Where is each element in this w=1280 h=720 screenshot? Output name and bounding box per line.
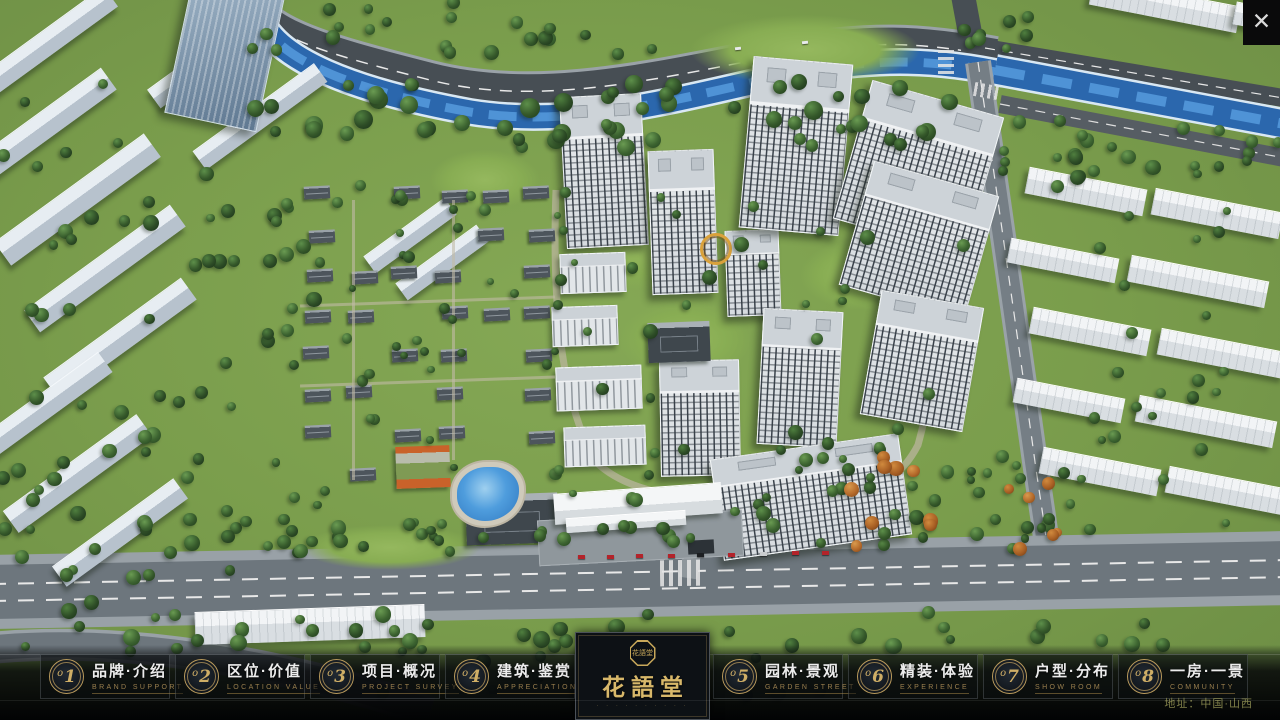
building-townhouse (304, 185, 331, 199)
tree (967, 476, 975, 484)
building-orange (395, 445, 450, 489)
building-lowrise (563, 425, 646, 468)
parked-car (607, 555, 614, 559)
building-townhouse (394, 429, 421, 443)
tree (278, 514, 289, 525)
menu-label-zh: 一房·一景 (1170, 660, 1245, 681)
tree (295, 615, 304, 624)
building-townhouse (305, 389, 332, 403)
tree (417, 122, 433, 138)
menu-label-zh: 户型·分布 (1035, 660, 1110, 681)
tree (878, 527, 891, 540)
tree (32, 161, 43, 172)
moving-car (735, 47, 741, 51)
tree (70, 506, 85, 521)
tree (1022, 11, 1034, 23)
tree (557, 532, 571, 546)
tree (271, 44, 283, 56)
tree (447, 0, 460, 9)
tree (445, 546, 455, 556)
tree (802, 300, 810, 308)
tree (457, 349, 465, 357)
tree (450, 464, 457, 471)
tree (851, 115, 868, 132)
tree (580, 30, 591, 41)
tree (1148, 412, 1156, 420)
menu-item-o6[interactable]: o6精装·体验EXPERIENCE (848, 654, 978, 699)
tree (877, 460, 891, 474)
tree (189, 258, 203, 272)
brand-seal-icon: 花語堂 (630, 640, 656, 666)
tree (816, 538, 826, 548)
tree (119, 215, 130, 226)
playground-ring (700, 233, 732, 265)
tree (865, 516, 879, 530)
tree (734, 237, 749, 252)
walk-path (352, 200, 355, 480)
tree (126, 570, 141, 585)
tree (1119, 280, 1130, 291)
tree (923, 388, 935, 400)
tree (220, 357, 232, 369)
tree (941, 94, 957, 110)
tree (957, 239, 970, 252)
tree (838, 297, 846, 305)
tree (996, 450, 1009, 463)
tree (970, 527, 984, 541)
tree (833, 91, 844, 102)
crosswalk (938, 50, 954, 74)
tree (313, 501, 322, 510)
tree (642, 609, 654, 621)
tree (47, 472, 61, 486)
crosswalk (660, 560, 702, 587)
tree (854, 89, 869, 104)
menu-label-en: APPRECIATION (497, 684, 577, 694)
building-tower (559, 93, 649, 249)
menu-item-o1[interactable]: o1品牌·介绍BRAND SUPPORT (40, 654, 170, 699)
tree (766, 111, 783, 128)
tree (199, 167, 213, 181)
tree (894, 138, 907, 151)
tree (542, 359, 552, 369)
tree (1077, 130, 1088, 141)
tree (822, 437, 835, 450)
tree (924, 519, 936, 531)
tree (650, 448, 659, 457)
tree (646, 393, 655, 402)
tree (816, 227, 824, 235)
tree (612, 48, 623, 59)
tree (844, 482, 859, 497)
parked-car (792, 551, 799, 555)
tree (57, 456, 70, 469)
tree (123, 629, 140, 646)
building-townhouse (309, 230, 336, 244)
tree (544, 23, 556, 35)
tree (1088, 165, 1100, 177)
menu-badge-icon: o4 (454, 659, 489, 694)
menu-badge-icon: o7 (992, 659, 1027, 694)
tree (141, 447, 151, 457)
menu-badge-icon: o6 (857, 659, 892, 694)
parked-car (822, 551, 829, 555)
tree (1077, 475, 1085, 483)
tree (306, 624, 319, 637)
tree (1066, 499, 1076, 509)
tree (766, 518, 780, 532)
menu-badge-icon: o1 (49, 659, 84, 694)
tree (427, 366, 435, 374)
building-townhouse (304, 310, 331, 324)
tree (449, 205, 458, 214)
close-button[interactable]: ✕ (1243, 0, 1280, 45)
menu-item-o3[interactable]: o3项目·概况PROJECT SURVEY (310, 654, 440, 699)
brand-logo-panel[interactable]: 花語堂 花語堂 · · · · · · · · · · (575, 632, 710, 720)
tree (11, 463, 26, 478)
tree (1219, 367, 1228, 376)
tree (434, 535, 445, 546)
tree (1193, 235, 1201, 243)
menu-label-en: LOCATION VALUE (227, 684, 320, 694)
tree (892, 80, 908, 96)
tree (1214, 125, 1225, 136)
tree (1177, 122, 1190, 135)
building-townhouse (529, 430, 556, 444)
building-lowrise (559, 252, 626, 294)
tree (422, 619, 434, 631)
tree (1192, 374, 1205, 387)
tree (520, 98, 540, 118)
building-townhouse (351, 270, 378, 284)
tree (1187, 391, 1200, 404)
tree (437, 519, 447, 529)
tree (998, 166, 1007, 175)
menu-label-zh: 建筑·鉴赏 (497, 660, 572, 681)
building-townhouse (524, 264, 551, 278)
building-townhouse (484, 307, 511, 321)
menu-item-o4[interactable]: o4建筑·鉴赏APPRECIATION (445, 654, 575, 699)
presentation-app: ✕ o1品牌·介绍BRAND SUPPORTo2区位·价值LOCATION VA… (0, 0, 1280, 720)
walk-path (452, 200, 455, 460)
tree (1193, 170, 1202, 179)
menu-item-o5[interactable]: o5园林·景观GARDEN STREET (713, 654, 843, 699)
tree (524, 32, 538, 46)
tree (49, 240, 58, 249)
tree (1112, 367, 1124, 379)
tree (916, 125, 928, 137)
tree (332, 197, 342, 207)
tree (484, 45, 499, 60)
tree (403, 518, 416, 531)
building-townhouse (483, 189, 510, 203)
tree (260, 28, 272, 40)
tree (181, 471, 194, 484)
tree (323, 3, 336, 16)
building-townhouse (528, 228, 555, 242)
tree (851, 628, 867, 644)
tree (1084, 524, 1095, 535)
tree (262, 328, 274, 340)
tree (113, 138, 123, 148)
tree (184, 535, 200, 551)
tree (1069, 150, 1084, 165)
tree (554, 465, 564, 475)
tree (806, 139, 819, 152)
tree (918, 532, 929, 543)
parked-car (668, 554, 675, 558)
building-townhouse (524, 305, 551, 319)
tree (1139, 618, 1150, 629)
menu-badge-icon: o5 (722, 659, 757, 694)
tree (364, 4, 373, 13)
menu-label-zh: 项目·概况 (362, 660, 437, 681)
menu-badge-icon: o3 (319, 659, 354, 694)
tree (98, 79, 108, 89)
tree (446, 12, 457, 23)
tree (795, 466, 803, 474)
tree (102, 444, 116, 458)
tree (560, 187, 571, 198)
tree (206, 214, 215, 223)
tree (569, 490, 576, 497)
building-lowrise (551, 305, 618, 347)
tree (1124, 211, 1134, 221)
tree (811, 333, 823, 345)
tree (487, 278, 494, 285)
menu-label-en: SHOW ROOM (1035, 684, 1102, 694)
building-townhouse (303, 346, 330, 360)
tree (551, 348, 558, 355)
building-townhouse (306, 269, 333, 283)
tree (326, 30, 340, 44)
tree (466, 191, 476, 201)
tree (15, 550, 29, 564)
tree (448, 315, 457, 324)
tree (1195, 443, 1208, 456)
tree (756, 506, 771, 521)
tree (1246, 135, 1258, 147)
tree (367, 86, 385, 104)
tree (60, 568, 74, 582)
tree (263, 254, 277, 268)
tree (1051, 180, 1064, 193)
tree (909, 510, 923, 524)
tree (1053, 153, 1062, 162)
tree (555, 274, 567, 286)
menu-label-zh: 品牌·介绍 (92, 660, 167, 681)
tree (306, 292, 321, 307)
tree (1214, 161, 1224, 171)
menu-label-zh: 区位·价值 (227, 660, 302, 681)
tree (597, 523, 609, 535)
tree (938, 622, 950, 634)
tree (1108, 430, 1121, 443)
tree (1043, 513, 1055, 525)
tree (143, 196, 155, 208)
tree (627, 262, 638, 273)
tree (1058, 467, 1070, 479)
building-townhouse (478, 228, 505, 242)
tree (601, 119, 612, 130)
parked-car (697, 553, 704, 557)
tree (1131, 402, 1142, 413)
tree (365, 24, 375, 34)
tree (444, 46, 456, 58)
bottom-nav-bar: o1品牌·介绍BRAND SUPPORTo2区位·价值LOCATION VALU… (0, 645, 1280, 720)
tree (513, 133, 525, 145)
building-townhouse (524, 388, 551, 402)
tree (26, 493, 40, 507)
tree (405, 78, 417, 90)
tree (730, 507, 739, 516)
menu-label-en: BRAND SUPPORT (92, 684, 183, 694)
brand-name: 花語堂 (602, 668, 689, 702)
tree (29, 390, 44, 405)
menu-item-o8[interactable]: o8一房·一景COMMUNITY (1118, 654, 1248, 699)
tree (478, 532, 489, 543)
tree (553, 300, 563, 310)
tree (907, 465, 919, 477)
tree (143, 215, 159, 231)
menu-label-en: GARDEN STREET (765, 684, 856, 694)
tree (0, 471, 10, 485)
tree (922, 606, 935, 619)
tree (647, 44, 656, 53)
building-townhouse (522, 185, 549, 199)
tree (143, 569, 155, 581)
tree (426, 436, 434, 444)
tree (439, 303, 449, 313)
tree (195, 386, 208, 399)
tree (596, 383, 608, 395)
parked-car (760, 552, 767, 556)
tree (364, 369, 375, 380)
building-townhouse (305, 424, 332, 438)
tree (682, 300, 691, 309)
tree (724, 626, 735, 637)
tree (358, 541, 369, 552)
building-townhouse (346, 385, 373, 399)
tree (629, 493, 643, 507)
tree (511, 16, 523, 28)
tree (1222, 519, 1230, 527)
tree (164, 546, 177, 559)
tree (625, 75, 643, 93)
tree (272, 458, 281, 467)
tree (929, 494, 941, 506)
tree (343, 80, 354, 91)
menu-badge-icon: o8 (1127, 659, 1162, 694)
tree (607, 87, 619, 99)
building-townhouse (437, 386, 464, 400)
tree (1145, 160, 1161, 176)
tree (315, 257, 325, 267)
parked-car (728, 552, 735, 556)
tree (349, 623, 363, 637)
tree (617, 139, 634, 156)
tree (958, 24, 970, 36)
tree (270, 126, 280, 136)
tree (1023, 492, 1034, 503)
tree (804, 101, 823, 120)
tree (138, 430, 152, 444)
tree (400, 352, 408, 360)
tree (799, 453, 813, 467)
tree (636, 102, 649, 115)
tree (1013, 115, 1026, 128)
menu-item-o7[interactable]: o7户型·分布SHOW ROOM (983, 654, 1113, 699)
tree (221, 204, 235, 218)
tree (842, 463, 855, 476)
tree (20, 97, 30, 107)
menu-label-zh: 园林·景观 (765, 660, 840, 681)
parked-car (636, 554, 643, 558)
menu-label-zh: 精装·体验 (900, 660, 975, 681)
tree (306, 536, 317, 547)
moving-car (802, 41, 808, 45)
tree (866, 473, 875, 482)
building-tower (860, 290, 984, 432)
tree (657, 193, 665, 201)
tree (907, 481, 917, 491)
tree (571, 259, 578, 266)
tree (333, 534, 348, 549)
tree (1273, 137, 1280, 148)
tree (941, 465, 954, 478)
building-tower (725, 229, 782, 317)
tree (889, 509, 900, 520)
tree (973, 487, 984, 498)
menu-badge-icon: o2 (184, 659, 219, 694)
tree (366, 414, 374, 422)
tree (84, 595, 99, 610)
parked-car (578, 555, 585, 559)
building-townhouse (390, 265, 417, 279)
brand-subtext: · · · · · · · · · · (597, 703, 689, 709)
tree (1037, 523, 1046, 532)
tree (420, 347, 429, 356)
tree (61, 603, 77, 619)
tree (25, 303, 39, 317)
tree (1021, 534, 1030, 543)
project-address: 地址：中国·山西 (1164, 695, 1253, 711)
tree (154, 390, 166, 402)
building-townhouse (435, 269, 462, 283)
tree (349, 285, 356, 292)
tree (794, 133, 806, 145)
tree (702, 270, 717, 285)
tree (354, 110, 373, 129)
masterplan-render (0, 0, 1280, 720)
tree (827, 485, 838, 496)
tree (864, 481, 876, 493)
tree (240, 516, 251, 527)
tree (340, 126, 354, 140)
tree (534, 529, 546, 541)
tree (946, 635, 955, 644)
tree (1020, 29, 1033, 42)
menu-label-en: COMMUNITY (1170, 684, 1235, 694)
menu-label-en: EXPERIENCE (900, 684, 969, 694)
tree (1121, 150, 1136, 165)
menu-item-o2[interactable]: o2区位·价值LOCATION VALUE (175, 654, 305, 699)
tree (342, 333, 352, 343)
